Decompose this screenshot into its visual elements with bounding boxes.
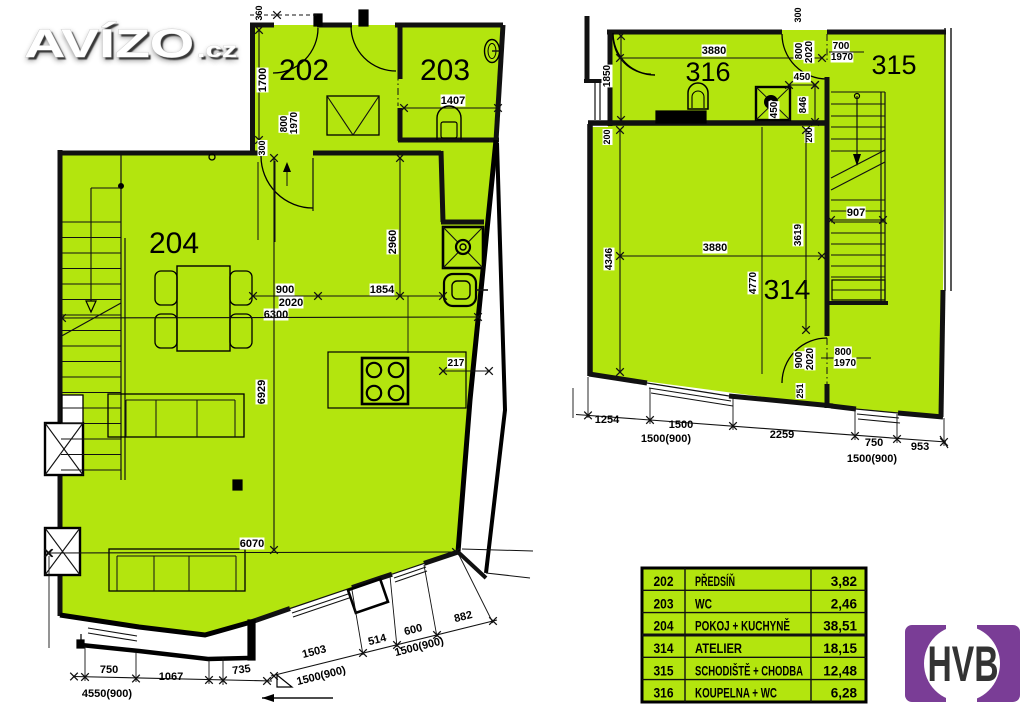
svg-text:18,15: 18,15 (823, 641, 857, 656)
svg-text:202: 202 (279, 54, 329, 87)
svg-text:300: 300 (793, 7, 803, 22)
svg-text:4770: 4770 (748, 271, 759, 294)
svg-text:2960: 2960 (387, 230, 399, 254)
svg-text:1500(900): 1500(900) (641, 433, 691, 445)
svg-text:1850: 1850 (602, 64, 613, 87)
svg-text:ATELIER: ATELIER (695, 641, 742, 656)
svg-text:1254: 1254 (595, 414, 620, 426)
svg-text:450: 450 (769, 101, 780, 118)
svg-text:6929: 6929 (256, 380, 268, 404)
svg-text:AVÍZO: AVÍZO (24, 21, 194, 66)
svg-text:1970: 1970 (289, 111, 300, 134)
svg-text:204: 204 (149, 227, 199, 260)
svg-text:PŘEDSÍŇ: PŘEDSÍŇ (695, 574, 735, 589)
svg-text:907: 907 (847, 207, 865, 219)
svg-text:6300: 6300 (264, 309, 288, 321)
svg-text:2259: 2259 (770, 429, 794, 441)
svg-text:KOUPELNA + WC: KOUPELNA + WC (695, 686, 777, 701)
svg-text:1854: 1854 (370, 284, 395, 296)
svg-text:2020: 2020 (805, 347, 816, 370)
svg-text:.cz: .cz (197, 39, 237, 62)
svg-text:203: 203 (654, 596, 674, 611)
svg-text:200: 200 (602, 129, 612, 144)
svg-text:POKOJ + KUCHYNĚ: POKOJ + KUCHYNĚ (695, 619, 790, 634)
svg-text:251: 251 (795, 383, 805, 398)
svg-text:38,51: 38,51 (823, 619, 857, 634)
svg-text:WC: WC (695, 596, 712, 611)
svg-text:204: 204 (654, 619, 674, 634)
svg-text:735: 735 (232, 663, 252, 677)
svg-text:315: 315 (871, 50, 916, 80)
svg-text:203: 203 (420, 54, 470, 87)
svg-text:700: 700 (833, 41, 850, 52)
svg-text:217: 217 (448, 358, 465, 369)
svg-text:315: 315 (654, 663, 674, 678)
svg-text:314: 314 (764, 274, 811, 305)
svg-text:3880: 3880 (702, 45, 726, 57)
svg-text:HVB: HVB (928, 636, 999, 692)
svg-text:846: 846 (798, 96, 809, 113)
svg-text:1067: 1067 (159, 671, 183, 683)
svg-text:1407: 1407 (441, 95, 465, 107)
svg-text:202: 202 (654, 574, 674, 589)
svg-text:2,46: 2,46 (831, 596, 858, 611)
svg-text:6,28: 6,28 (831, 686, 858, 701)
svg-text:12,48: 12,48 (823, 663, 857, 678)
svg-text:800: 800 (835, 347, 852, 358)
svg-text:450: 450 (794, 72, 811, 83)
svg-text:900: 900 (794, 351, 805, 368)
svg-text:360: 360 (254, 5, 264, 20)
svg-text:314: 314 (654, 641, 674, 656)
svg-text:6070: 6070 (240, 538, 264, 550)
svg-text:953: 953 (911, 441, 929, 453)
svg-text:316: 316 (654, 686, 674, 701)
svg-text:3,82: 3,82 (831, 574, 857, 589)
svg-text:3619: 3619 (793, 223, 804, 246)
svg-text:900: 900 (276, 284, 294, 296)
svg-text:300: 300 (257, 140, 267, 155)
svg-text:4346: 4346 (604, 247, 615, 270)
svg-text:3880: 3880 (703, 242, 727, 254)
svg-text:316: 316 (685, 57, 730, 87)
svg-text:1500(900): 1500(900) (847, 453, 897, 465)
svg-text:750: 750 (865, 437, 883, 449)
svg-text:2020: 2020 (279, 297, 303, 309)
svg-text:1500: 1500 (669, 419, 693, 431)
svg-text:SCHODIŠTĚ + CHODBA: SCHODIŠTĚ + CHODBA (695, 663, 803, 678)
svg-text:1970: 1970 (831, 52, 854, 63)
svg-text:750: 750 (100, 664, 118, 676)
svg-text:2020: 2020 (804, 40, 815, 63)
svg-text:4550(900): 4550(900) (82, 688, 132, 700)
svg-text:1970: 1970 (834, 358, 857, 369)
svg-text:1700: 1700 (257, 68, 269, 92)
